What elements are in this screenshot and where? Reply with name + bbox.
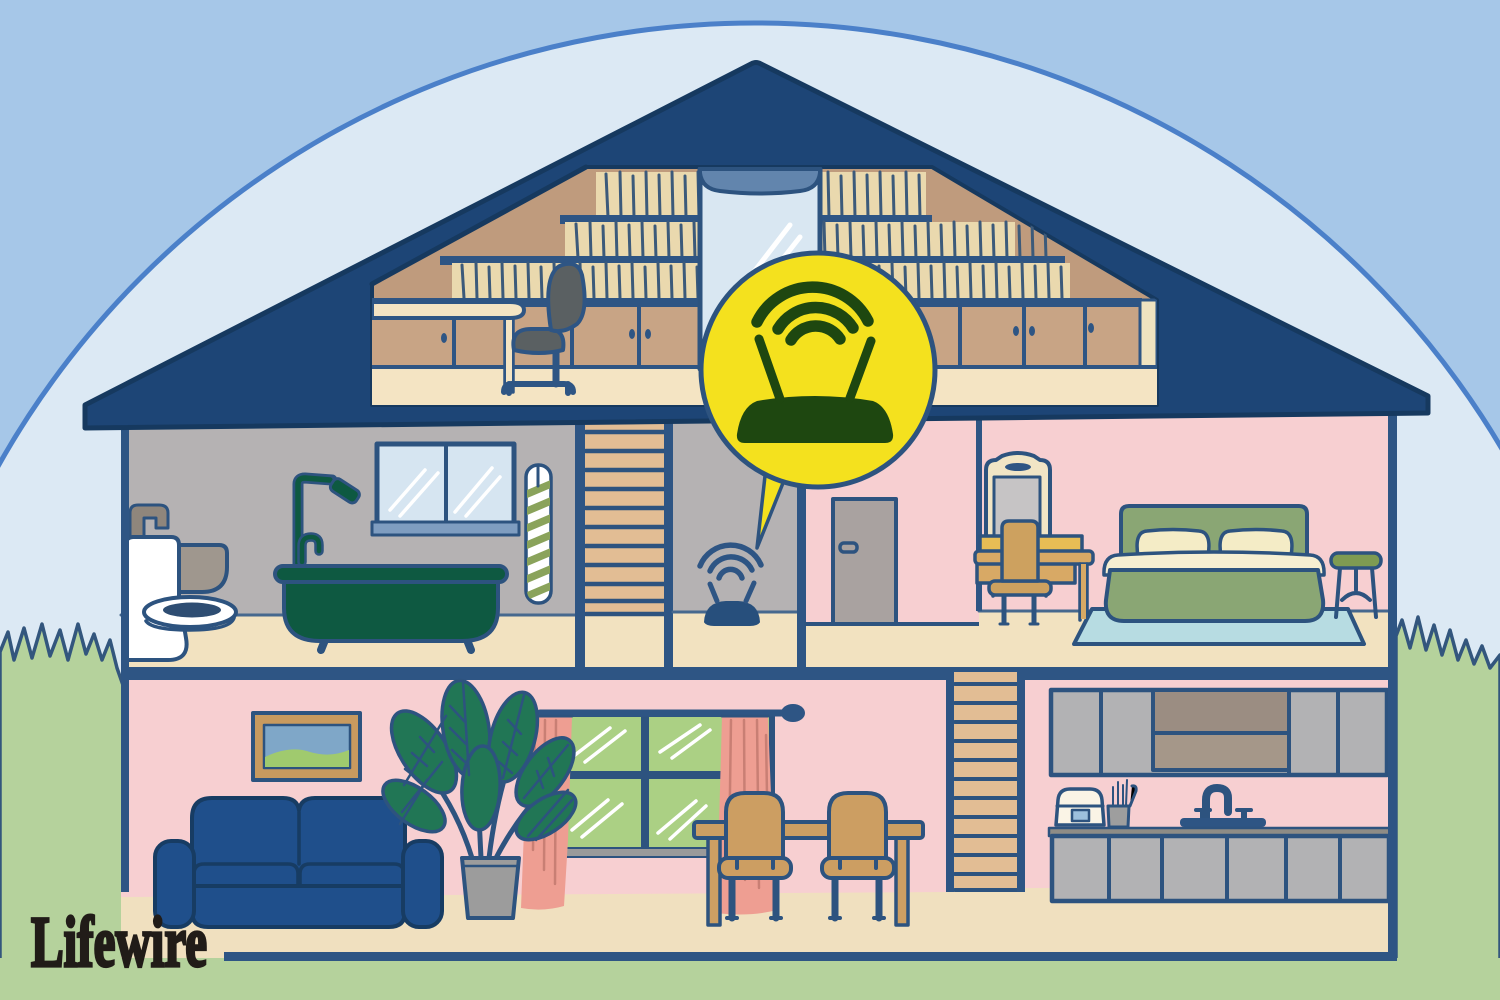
- svg-text:Lifewire: Lifewire: [31, 902, 207, 982]
